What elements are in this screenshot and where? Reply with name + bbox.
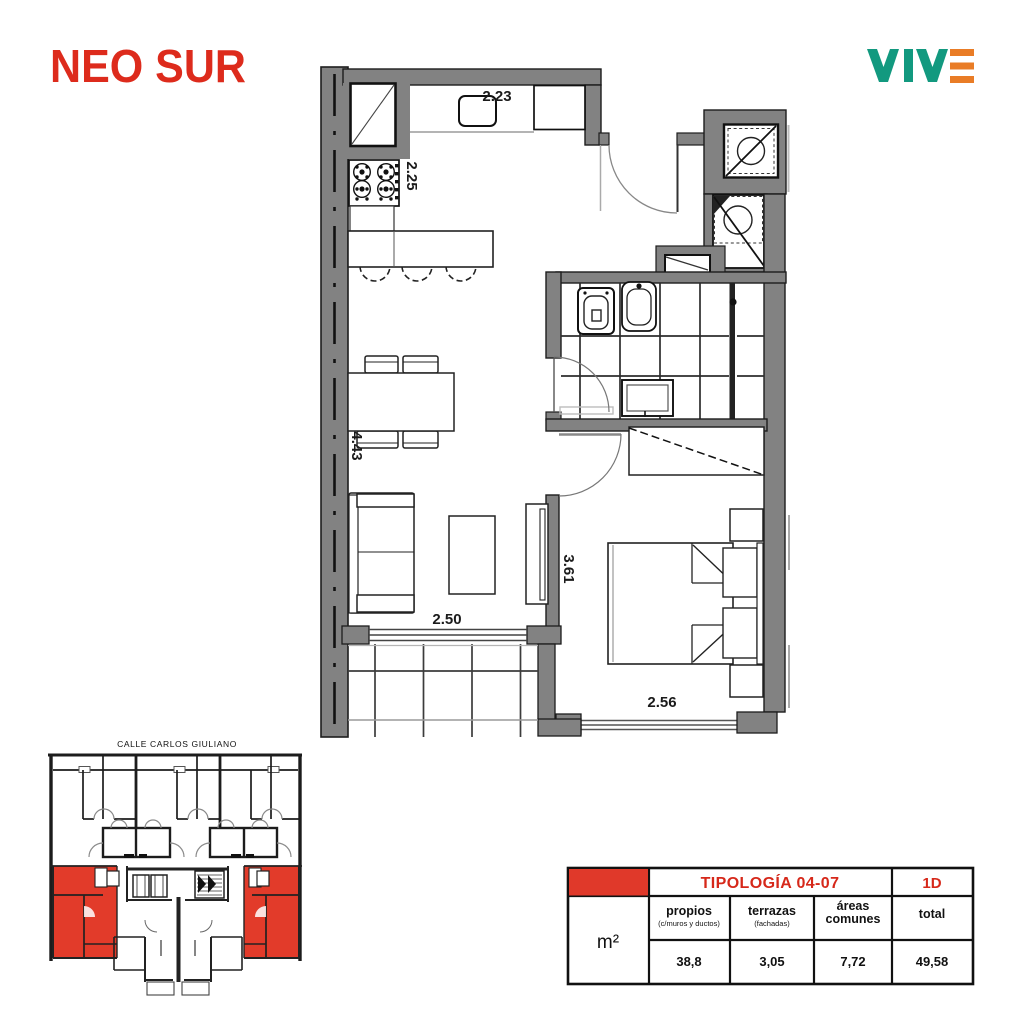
svg-text:7,72: 7,72 bbox=[840, 954, 865, 969]
svg-text:NEO SUR: NEO SUR bbox=[50, 40, 246, 92]
svg-text:38,8: 38,8 bbox=[676, 954, 701, 969]
svg-text:comunes: comunes bbox=[826, 912, 881, 926]
svg-text:2.50: 2.50 bbox=[432, 611, 461, 628]
svg-text:2.23: 2.23 bbox=[482, 88, 511, 105]
svg-text:propios: propios bbox=[666, 904, 712, 918]
svg-text:m²: m² bbox=[597, 932, 619, 953]
svg-text:3.61: 3.61 bbox=[560, 554, 577, 583]
svg-text:3,05: 3,05 bbox=[759, 954, 784, 969]
svg-text:TIPOLOGÍA 04-07: TIPOLOGÍA 04-07 bbox=[701, 873, 840, 892]
svg-text:(c/muros y ductos): (c/muros y ductos) bbox=[658, 919, 720, 928]
svg-text:2.25: 2.25 bbox=[403, 161, 420, 190]
svg-text:(fachadas): (fachadas) bbox=[754, 919, 790, 928]
svg-text:49,58: 49,58 bbox=[916, 954, 949, 969]
svg-text:terrazas: terrazas bbox=[748, 904, 796, 918]
svg-text:1D: 1D bbox=[922, 875, 941, 892]
svg-text:total: total bbox=[919, 907, 945, 921]
svg-text:áreas: áreas bbox=[837, 899, 870, 913]
svg-text:2.56: 2.56 bbox=[647, 694, 676, 711]
svg-text:4.43: 4.43 bbox=[348, 431, 365, 460]
svg-text:CALLE CARLOS GIULIANO: CALLE CARLOS GIULIANO bbox=[117, 739, 237, 749]
